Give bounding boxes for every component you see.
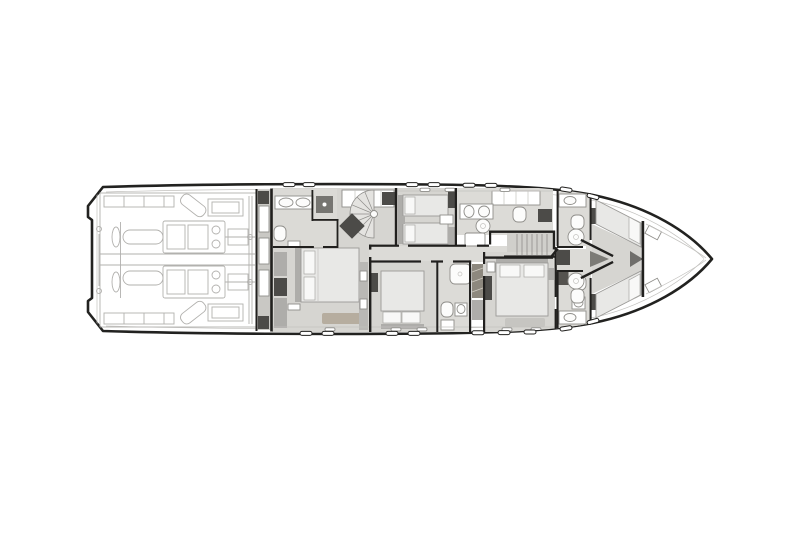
wardrobe [371,273,378,292]
nightstand [548,268,554,280]
toilet-icon [571,289,584,303]
porthole-icon [303,183,315,187]
shower-icon [568,273,584,289]
aft-bulkhead [270,189,273,332]
locker [557,250,570,265]
wardrobe [448,189,455,208]
porthole-icon [283,183,295,187]
sink-icon [564,314,576,322]
stern-equipment-rack [104,196,174,207]
pillow [304,277,315,300]
sink-icon [464,206,474,218]
floor-plan-canvas [0,0,800,533]
toilet-icon [513,207,526,222]
shower-icon [568,229,584,245]
pillow [500,265,520,277]
pillow [304,251,315,274]
porthole-icon [485,183,497,187]
porthole-icon [386,331,398,335]
nightstand [440,215,453,224]
porthole-icon [498,331,510,335]
sink-icon [457,305,465,314]
bench [505,318,545,327]
porthole-icon [472,331,484,335]
double-bed [381,271,424,311]
headboard [295,248,301,302]
shower-icon [450,264,471,284]
porthole-icon [406,183,418,187]
hatch-wardrobe [472,264,483,298]
technical-compartment [256,189,271,331]
pillow [524,265,544,277]
porthole-icon [428,183,440,187]
porthole-icon [300,331,312,335]
sink-icon [296,198,310,207]
porthole-icon [322,331,334,335]
appliance-dark [538,209,552,222]
sink-icon [564,197,576,205]
tank [123,230,163,244]
pillow [402,312,420,323]
wardrobe [382,192,395,205]
sink-icon [279,198,293,207]
washing-machine-icon [476,219,490,233]
toilet-icon [441,302,453,317]
pillow [405,225,415,242]
porthole-icon [463,183,475,187]
pillow [405,197,415,214]
yacht-floor-plan [0,0,800,533]
nightstand [487,262,495,272]
appliance [465,233,485,246]
toilet-icon [571,215,584,229]
wardrobe [274,252,287,276]
pillow [383,312,401,323]
sink-icon [479,206,490,217]
porthole-icon [408,331,420,335]
toilet-icon [274,226,286,241]
nightstand [288,304,300,310]
forward-bulkhead [642,221,645,297]
porthole-icon [524,330,536,334]
